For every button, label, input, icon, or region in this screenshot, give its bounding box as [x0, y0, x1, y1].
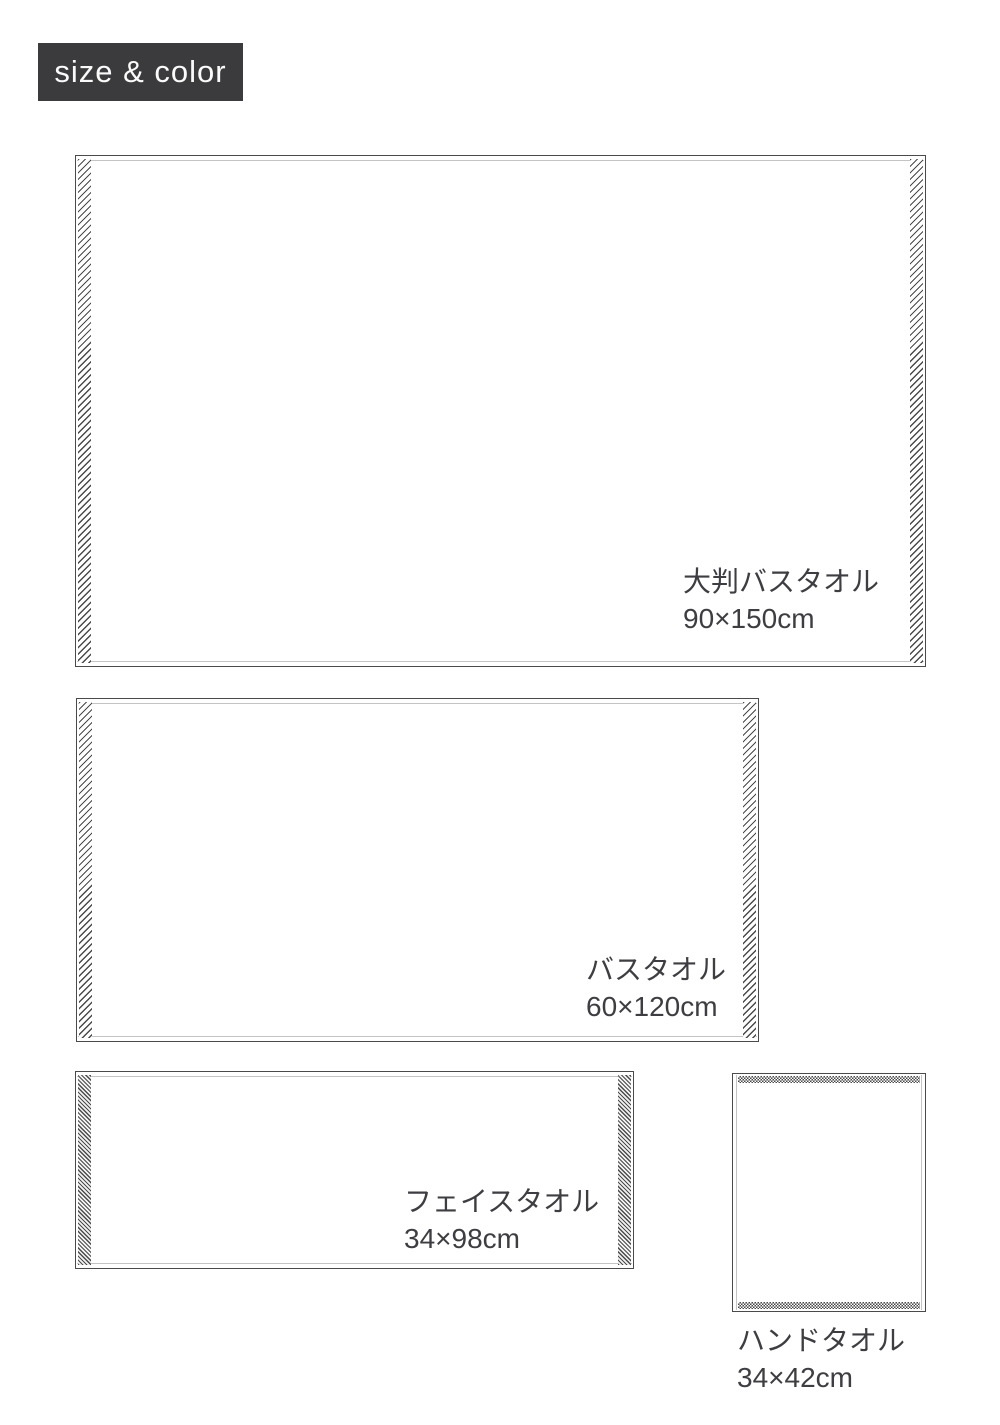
towel-name: 大判バスタオル — [683, 563, 879, 600]
hem-stitch-line-left — [736, 1075, 737, 1310]
towel-size: 90×150cm — [683, 600, 879, 637]
towel-size: 60×120cm — [586, 988, 726, 1025]
size-color-badge-label: size & color — [54, 54, 226, 90]
towel-size: 34×98cm — [404, 1220, 599, 1257]
woven-band-left — [79, 702, 92, 1038]
towel-name: フェイスタオル — [404, 1183, 599, 1220]
towel-name: バスタオル — [586, 951, 726, 988]
towel-label-bath-towel: バスタオル 60×120cm — [586, 951, 726, 1025]
hem-stitch-line-top — [77, 160, 924, 161]
hem-stitch-line-bottom — [77, 661, 924, 662]
towel-label-large-bath-towel: 大判バスタオル 90×150cm — [683, 563, 879, 637]
woven-band-right — [743, 702, 756, 1038]
hem-stitch-line-right — [921, 1075, 922, 1310]
size-color-badge: size & color — [38, 43, 243, 101]
towel-diagram-face-towel: フェイスタオル 34×98cm — [75, 1071, 634, 1269]
woven-band-top — [738, 1076, 920, 1083]
woven-band-right — [910, 159, 923, 663]
page-canvas: size & color 大判バスタオル 90×150cm バスタオル 60×1… — [0, 0, 1000, 1425]
towel-size: 34×42cm — [737, 1359, 905, 1396]
woven-band-left — [78, 159, 91, 663]
towel-diagram-bath-towel: バスタオル 60×120cm — [76, 698, 759, 1042]
towel-label-hand-towel: ハンドタオル 34×42cm — [737, 1322, 905, 1396]
towel-name: ハンドタオル — [737, 1322, 905, 1359]
hem-stitch-line-top — [77, 1076, 632, 1077]
towel-label-face-towel: フェイスタオル 34×98cm — [404, 1183, 599, 1257]
towel-diagram-hand-towel — [732, 1073, 926, 1312]
hem-stitch-line-top — [78, 703, 757, 704]
woven-band-right — [618, 1075, 631, 1265]
hem-stitch-line-bottom — [77, 1263, 632, 1264]
woven-band-left — [78, 1075, 91, 1265]
towel-diagram-large-bath-towel: 大判バスタオル 90×150cm — [75, 155, 926, 667]
woven-band-bottom — [738, 1302, 920, 1309]
hem-stitch-line-bottom — [78, 1036, 757, 1037]
